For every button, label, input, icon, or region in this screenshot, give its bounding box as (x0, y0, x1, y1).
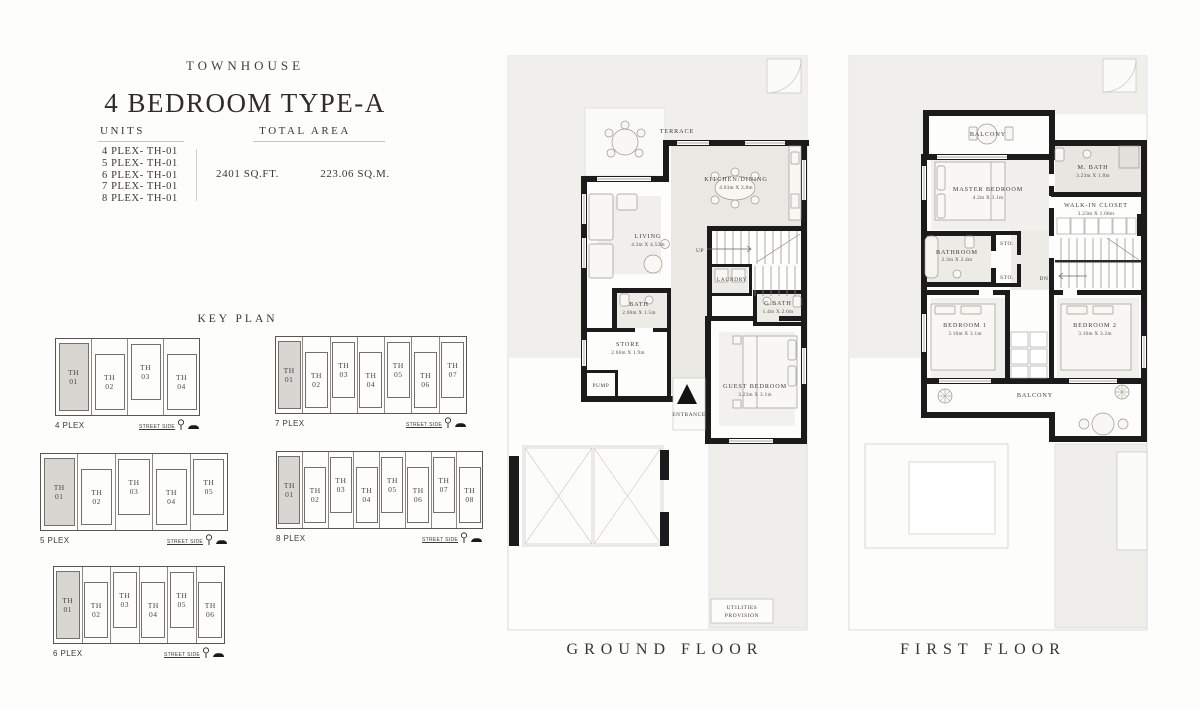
area-sqm-value: 223.06 SQ.M. (310, 168, 400, 180)
ground-floor-plan: TERRACE KITCHEN/DINING 4.63m X 3.8m LIVI… (505, 48, 815, 643)
utilities-label: UTILITIES (727, 605, 758, 611)
plex-label: 8 PLEX (276, 534, 306, 543)
car-icon (187, 424, 200, 430)
utilities-box (711, 599, 773, 623)
first-floor-plan: BALCONY M. BATH 3.23m X 1.8m MASTER BEDR… (845, 48, 1165, 643)
room-dims: 4.2m X 4.53m (631, 242, 665, 248)
street-side: STREET SIDE (406, 417, 467, 428)
key-plan-8plex: TH01TH02TH03TH04TH05TH06TH07TH08 8 PLEX … (276, 451, 483, 543)
street-side-label: STREET SIDE (422, 537, 458, 543)
plex-unit-cell: TH06 (406, 452, 432, 528)
car-icon (212, 652, 225, 658)
gf-entrance (673, 378, 705, 430)
plex-unit-cell: TH06 (197, 567, 225, 643)
plex-unit: TH05 (170, 572, 194, 629)
room-label: M. BATH (1077, 164, 1108, 171)
street-side: STREET SIDE (139, 419, 200, 430)
street-side: STREET SIDE (164, 647, 225, 658)
plex-unit-cell: TH03 (329, 452, 355, 528)
unit-row: 5 PLEX- TH-01 (102, 158, 197, 170)
plex-unit-cell: TH04 (354, 452, 380, 528)
floorplan-page: TOWNHOUSE 4 BEDROOM TYPE-A UNITS TOTAL A… (0, 0, 1200, 710)
plex-unit-cell: TH02 (303, 452, 329, 528)
plex-unit: TH02 (84, 582, 108, 639)
plex-unit: TH01 (56, 571, 80, 638)
plex-unit-cell: TH01 (277, 452, 303, 528)
plex-unit: TH03 (330, 457, 352, 514)
plex-diagram: TH01TH02TH03TH04TH05 (40, 453, 228, 531)
plex-unit: TH07 (441, 342, 464, 399)
plex-unit-cell: TH02 (78, 454, 115, 530)
room-dims: 4.2m X 3.1m (973, 195, 1004, 201)
room-label: PUMP (592, 383, 609, 389)
plex-unit: TH03 (118, 459, 149, 516)
plex-unit-cell: TH04 (153, 454, 190, 530)
room-dims: 2.3m X 2.4m (942, 257, 973, 263)
brand-label: TOWNHOUSE (0, 58, 490, 74)
plex-unit: TH01 (278, 341, 301, 408)
plex-unit-cell: TH07 (440, 337, 466, 413)
room-dims: 1.4m X 2.6m (763, 309, 794, 315)
key-plan-5plex: TH01TH02TH03TH04TH05 5 PLEX STREET SIDE (40, 453, 228, 545)
plex-unit: TH08 (459, 467, 481, 524)
car-icon (454, 422, 467, 428)
plex-unit-cell: TH03 (331, 337, 358, 413)
plex-unit-cell: TH04 (140, 567, 169, 643)
plex-label: 4 PLEX (55, 421, 85, 430)
units-column-header: UNITS (100, 125, 195, 137)
room-label: BATH (629, 301, 649, 308)
plex-unit: TH04 (141, 582, 165, 639)
tree-icon (177, 419, 185, 430)
street-side-label: STREET SIDE (139, 424, 175, 430)
page-title: 4 BEDROOM TYPE-A (0, 88, 490, 119)
car-icon (470, 537, 483, 543)
plex-unit-cell: TH01 (54, 567, 83, 643)
units-underline (98, 141, 184, 142)
tree-icon (205, 534, 213, 545)
room-dims: 3.23m X 1.68m (1078, 211, 1114, 217)
area-underline (253, 141, 385, 142)
room-label: LAUNDRY (717, 277, 747, 283)
plex-unit: TH03 (131, 344, 161, 401)
room-label: STORE (616, 341, 640, 348)
room-label: WALK-IN CLOSET (1064, 202, 1128, 209)
plex-label: 7 PLEX (275, 419, 305, 428)
up-label: UP (696, 248, 704, 254)
room-dims: 3.16m X 3.2m (1078, 331, 1112, 337)
unit-row: 6 PLEX- TH-01 (102, 170, 197, 182)
plex-label: 5 PLEX (40, 536, 70, 545)
plex-unit-cell: TH05 (385, 337, 412, 413)
plex-unit: TH04 (167, 354, 197, 411)
plex-unit: TH07 (433, 457, 455, 514)
room-label: KITCHEN/DINING (704, 176, 767, 183)
street-side: STREET SIDE (422, 532, 483, 543)
plex-diagram: TH01TH02TH03TH04TH05TH06TH07TH08 (276, 451, 483, 529)
plex-diagram: TH01TH02TH03TH04TH05TH06TH07 (275, 336, 467, 414)
plex-unit-cell: TH02 (83, 567, 112, 643)
room-label: BEDROOM 2 (1073, 322, 1117, 329)
plex-unit: TH05 (193, 459, 224, 516)
room-label: GUEST BEDROOM (723, 383, 787, 390)
plex-unit: TH06 (198, 582, 222, 639)
first-floor-title: FIRST FLOOR (868, 641, 1098, 659)
tree-icon (444, 417, 452, 428)
plex-unit-cell: TH03 (111, 567, 140, 643)
plex-unit-cell: TH01 (276, 337, 303, 413)
plex-label: 6 PLEX (53, 649, 83, 658)
plex-unit-cell: TH05 (168, 567, 197, 643)
unit-row: 7 PLEX- TH-01 (102, 181, 197, 193)
tree-icon (460, 532, 468, 543)
plex-unit-cell: TH07 (432, 452, 458, 528)
room-label: BALCONY (970, 131, 1006, 138)
key-plan-7plex: TH01TH02TH03TH04TH05TH06TH07 7 PLEX STRE… (275, 336, 467, 428)
dn-label: DN. (1040, 276, 1051, 282)
plex-unit: TH04 (359, 352, 382, 409)
plex-unit-cell: TH03 (116, 454, 153, 530)
plex-unit: TH02 (304, 467, 326, 524)
plex-diagram: TH01TH02TH03TH04 (55, 338, 200, 416)
plex-unit: TH03 (332, 342, 355, 399)
plex-unit-cell: TH04 (164, 339, 199, 415)
unit-row: 8 PLEX- TH-01 (102, 193, 197, 205)
plex-unit-cell: TH05 (380, 452, 406, 528)
plex-unit-cell: TH01 (56, 339, 92, 415)
plex-unit: TH06 (414, 352, 437, 409)
room-dims: 2.66m X 1.9m (611, 350, 645, 356)
unit-row: 4 PLEX- TH-01 (102, 146, 197, 158)
ff-stairs (1055, 238, 1141, 288)
street-side-label: STREET SIDE (164, 652, 200, 658)
room-label: MASTER BEDROOM (953, 186, 1023, 193)
total-area-column-header: TOTAL AREA (245, 125, 365, 137)
plex-unit: TH01 (44, 458, 75, 525)
street-side: STREET SIDE (167, 534, 228, 545)
room-dims: 3.16m X 3.1m (948, 331, 982, 337)
room-label: LIVING (635, 233, 662, 240)
plex-unit-cell: TH06 (412, 337, 439, 413)
plex-unit: TH04 (356, 467, 378, 524)
plex-unit: TH01 (278, 456, 300, 523)
plex-unit-cell: TH08 (457, 452, 482, 528)
plex-unit-cell: TH03 (128, 339, 164, 415)
plex-unit: TH02 (305, 352, 328, 409)
key-plan-title: KEY PLAN (155, 313, 320, 325)
room-label: BATHROOM (936, 249, 978, 256)
key-plan-6plex: TH01TH02TH03TH04TH05TH06 6 PLEX STREET S… (53, 566, 225, 658)
units-list: 4 PLEX- TH-01 5 PLEX- TH-01 6 PLEX- TH-0… (102, 146, 197, 205)
room-dims: 4.63m X 3.8m (719, 185, 753, 191)
plex-unit: TH01 (59, 343, 89, 410)
plex-unit: TH02 (95, 354, 125, 411)
car-icon (215, 539, 228, 545)
plex-unit-cell: TH01 (41, 454, 78, 530)
room-label: BALCONY (1017, 392, 1053, 399)
plex-unit: TH05 (387, 342, 410, 399)
plex-diagram: TH01TH02TH03TH04TH05TH06 (53, 566, 225, 644)
plex-unit: TH06 (407, 467, 429, 524)
tree-icon (202, 647, 210, 658)
room-label: BEDROOM 1 (943, 322, 987, 329)
street-side-label: STREET SIDE (167, 539, 203, 545)
plex-unit-cell: TH02 (303, 337, 330, 413)
utilities-label: PROVISION (725, 613, 759, 619)
plex-unit-cell: TH05 (191, 454, 227, 530)
plex-unit: TH04 (156, 469, 187, 526)
plex-unit-cell: TH04 (358, 337, 385, 413)
storage-label: STO. (1000, 275, 1014, 281)
plex-unit: TH05 (381, 457, 403, 514)
room-dims: 3.23m X 3.1m (738, 392, 772, 398)
room-label: G.BATH (764, 300, 792, 307)
storage-label: STO. (1000, 241, 1014, 247)
room-label: TERRACE (660, 128, 695, 135)
entrance-label: ENTRANCE (672, 412, 706, 418)
ground-floor-title: GROUND FLOOR (540, 641, 790, 659)
room-dims: 3.23m X 1.8m (1076, 173, 1110, 179)
street-side-label: STREET SIDE (406, 422, 442, 428)
key-plan-4plex: TH01TH02TH03TH04 4 PLEX STREET SIDE (55, 338, 200, 430)
room-dims: 2.66m X 1.5m (622, 310, 656, 316)
plex-unit: TH03 (113, 572, 137, 629)
plex-unit: TH02 (81, 469, 112, 526)
plex-unit-cell: TH02 (92, 339, 128, 415)
area-sqft-value: 2401 SQ.FT. (205, 168, 290, 180)
